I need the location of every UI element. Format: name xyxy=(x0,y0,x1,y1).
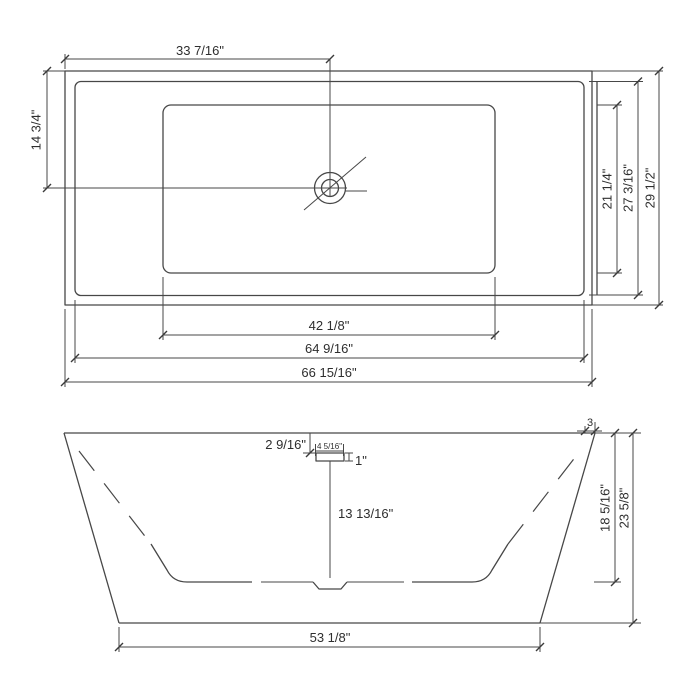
dim-drain-from-left-label: 33 7/16" xyxy=(176,43,224,58)
dim-base-length-label: 53 1/8" xyxy=(310,630,351,645)
dim-inner-length-label: 64 9/16" xyxy=(305,341,353,356)
dim-drain-to-floor-label: 13 13/16" xyxy=(338,506,394,521)
dim-inner-width-label: 27 3/16" xyxy=(620,164,635,212)
dim-overall-height-label: 23 5/8" xyxy=(616,487,631,528)
dim-overflow-from-rim-label: 2 9/16" xyxy=(265,437,306,452)
dim-fitting-width-label: 4 5/16" xyxy=(317,442,342,451)
dim-drain-from-top-label: 14 3/4" xyxy=(28,109,43,150)
bathtub-drawing: 33 7/16" 14 3/4" 21 1/4" 27 3/16" 29 1/2… xyxy=(0,0,700,700)
drawing-sheet: 33 7/16" 14 3/4" 21 1/4" 27 3/16" 29 1/2… xyxy=(0,0,700,700)
dim-fitting-height-label: 1" xyxy=(355,453,367,468)
dim-basin-width-label: 21 1/4" xyxy=(599,168,614,209)
dim-overall-width-label: 29 1/2" xyxy=(642,167,657,208)
dim-inner-depth-label: 18 5/16" xyxy=(597,484,612,532)
dim-overall-length-label: 66 15/16" xyxy=(301,365,357,380)
dim-basin-length-label: 42 1/8" xyxy=(309,318,350,333)
